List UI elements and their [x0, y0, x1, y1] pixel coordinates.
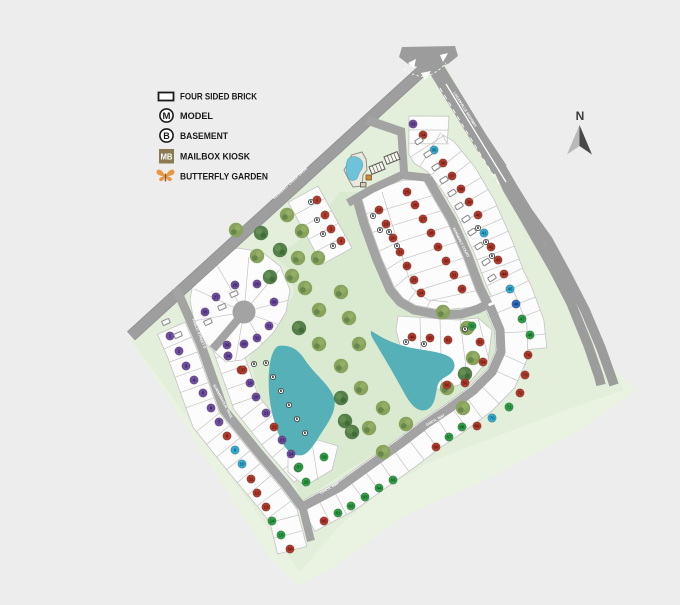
svg-text:1: 1 — [169, 334, 172, 339]
svg-text:58: 58 — [321, 455, 327, 460]
svg-text:MB: MB — [161, 153, 173, 162]
svg-text:30: 30 — [271, 300, 277, 305]
svg-text:12: 12 — [254, 491, 260, 496]
svg-text:10: 10 — [239, 462, 245, 467]
svg-text:38: 38 — [458, 187, 464, 192]
svg-text:18: 18 — [376, 208, 382, 213]
svg-text:74: 74 — [525, 353, 531, 358]
svg-text:49: 49 — [409, 335, 415, 340]
svg-text:62: 62 — [348, 504, 354, 509]
svg-text:11: 11 — [249, 477, 254, 482]
svg-text:50: 50 — [427, 336, 433, 341]
svg-text:47: 47 — [519, 317, 525, 322]
svg-text:BASEMENT: BASEMENT — [180, 131, 228, 141]
svg-text:31: 31 — [266, 324, 272, 329]
svg-text:32: 32 — [254, 336, 260, 341]
svg-text:32: 32 — [459, 287, 465, 292]
svg-text:25: 25 — [404, 190, 410, 195]
svg-text:51: 51 — [445, 338, 451, 343]
svg-text:40: 40 — [475, 213, 481, 218]
svg-text:70: 70 — [489, 416, 495, 421]
svg-text:34: 34 — [420, 133, 426, 138]
svg-text:24: 24 — [418, 291, 424, 296]
svg-text:26: 26 — [412, 203, 418, 208]
svg-text:M: M — [163, 111, 171, 121]
svg-text:4: 4 — [340, 239, 343, 244]
svg-text:48: 48 — [527, 333, 533, 338]
svg-text:44: 44 — [501, 272, 507, 277]
svg-text:B: B — [163, 131, 170, 141]
svg-text:19: 19 — [383, 222, 389, 227]
svg-text:72: 72 — [517, 391, 523, 396]
svg-text:14: 14 — [269, 519, 275, 524]
svg-text:64: 64 — [376, 486, 382, 491]
svg-text:15: 15 — [278, 533, 284, 538]
svg-text:9: 9 — [234, 448, 237, 453]
svg-text:23: 23 — [279, 438, 285, 443]
svg-text:28: 28 — [428, 231, 434, 236]
svg-text:42: 42 — [488, 245, 494, 250]
svg-text:33: 33 — [241, 342, 247, 347]
svg-text:46: 46 — [513, 302, 519, 307]
svg-text:23: 23 — [411, 278, 417, 283]
svg-text:41: 41 — [481, 231, 487, 236]
svg-text:MAILBOX KIOSK: MAILBOX KIOSK — [180, 152, 250, 162]
svg-text:65: 65 — [390, 478, 396, 483]
svg-text:33: 33 — [410, 122, 416, 127]
svg-text:67: 67 — [446, 435, 452, 440]
svg-text:26: 26 — [303, 480, 309, 485]
svg-text:37: 37 — [449, 174, 455, 179]
svg-text:3: 3 — [330, 227, 333, 232]
svg-text:N: N — [576, 109, 585, 123]
svg-text:4: 4 — [193, 378, 196, 383]
svg-text:28: 28 — [232, 283, 238, 288]
svg-text:24: 24 — [288, 452, 294, 457]
svg-text:35: 35 — [431, 148, 437, 153]
svg-text:22: 22 — [404, 264, 410, 269]
svg-text:1: 1 — [316, 198, 319, 203]
svg-text:27: 27 — [420, 217, 426, 222]
svg-text:45: 45 — [507, 287, 513, 292]
svg-text:56: 56 — [444, 383, 450, 388]
svg-text:66: 66 — [433, 445, 439, 450]
svg-text:43: 43 — [495, 258, 501, 263]
svg-text:34: 34 — [225, 354, 231, 359]
svg-text:2: 2 — [178, 349, 181, 354]
svg-text:6: 6 — [210, 406, 213, 411]
svg-text:5: 5 — [202, 391, 205, 396]
svg-text:57: 57 — [296, 465, 302, 470]
svg-text:29: 29 — [254, 282, 260, 287]
svg-text:63: 63 — [362, 495, 368, 500]
svg-text:29: 29 — [435, 245, 441, 250]
svg-text:20: 20 — [390, 236, 396, 241]
svg-text:7: 7 — [218, 420, 221, 425]
svg-text:20: 20 — [253, 395, 259, 400]
svg-text:55: 55 — [462, 381, 468, 386]
svg-text:31: 31 — [451, 273, 457, 278]
svg-text:35: 35 — [202, 310, 208, 315]
svg-text:53: 53 — [477, 340, 483, 345]
svg-text:MODEL: MODEL — [180, 111, 214, 121]
svg-text:69: 69 — [474, 424, 480, 429]
svg-text:30: 30 — [443, 259, 449, 264]
svg-text:8: 8 — [226, 434, 229, 439]
svg-text:39: 39 — [466, 200, 472, 205]
svg-text:19: 19 — [247, 381, 253, 386]
svg-text:21: 21 — [263, 411, 269, 416]
svg-text:60: 60 — [321, 519, 327, 524]
svg-text:73: 73 — [522, 373, 528, 378]
svg-text:22: 22 — [271, 425, 277, 430]
svg-text:2: 2 — [324, 213, 327, 218]
svg-text:16: 16 — [287, 547, 293, 552]
svg-text:71: 71 — [506, 405, 512, 410]
svg-text:3: 3 — [185, 364, 188, 369]
svg-text:36: 36 — [224, 343, 230, 348]
svg-text:61: 61 — [335, 511, 341, 516]
svg-text:68: 68 — [459, 425, 465, 430]
svg-text:36: 36 — [440, 161, 446, 166]
svg-text:21: 21 — [397, 250, 403, 255]
svg-text:FOUR SIDED BRICK: FOUR SIDED BRICK — [180, 92, 257, 102]
svg-text:54: 54 — [480, 360, 486, 365]
svg-text:52: 52 — [469, 324, 475, 329]
svg-text:13: 13 — [263, 505, 269, 510]
svg-text:37: 37 — [240, 368, 246, 373]
svg-text:27: 27 — [213, 295, 219, 300]
svg-text:BUTTERFLY GARDEN: BUTTERFLY GARDEN — [180, 172, 268, 182]
